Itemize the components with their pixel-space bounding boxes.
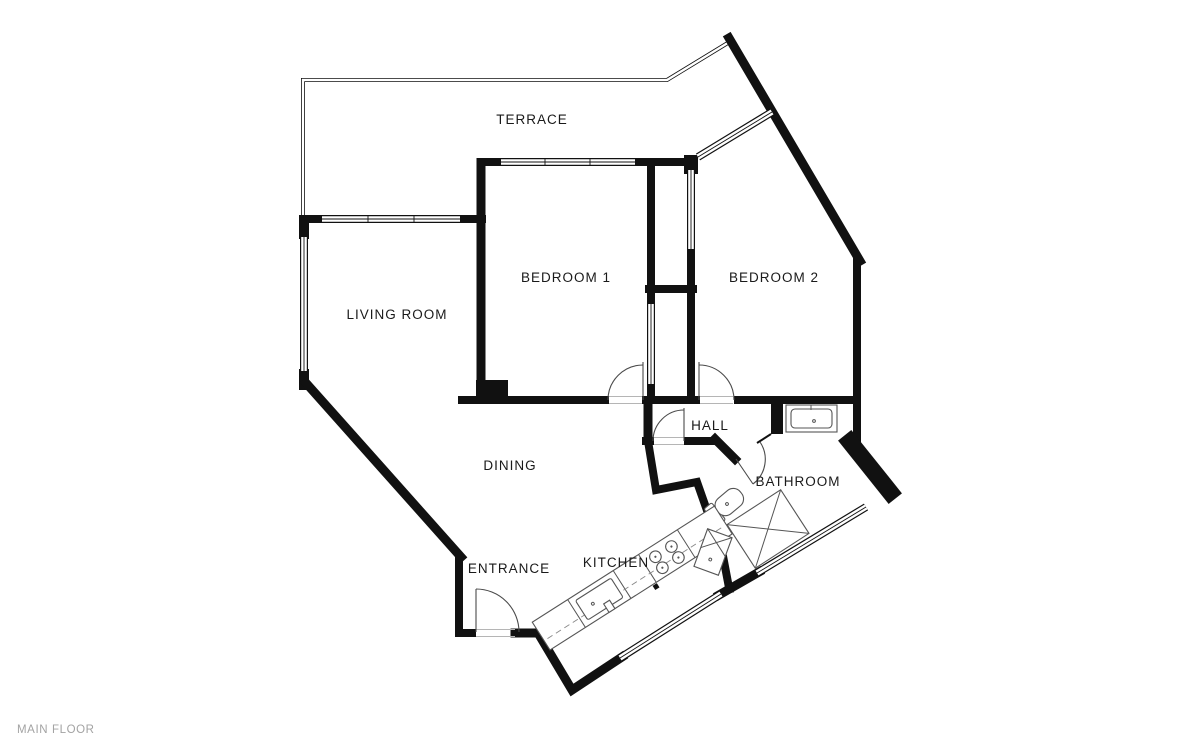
floor-plan-drawing: TERRACE BEDROOM 1 BEDROOM 2 LIVING ROOM … [0, 0, 1200, 750]
kitchen-fixtures [532, 506, 735, 655]
floor-plan-page: TERRACE BEDROOM 1 BEDROOM 2 LIVING ROOM … [0, 0, 1200, 750]
room-label-hall: HALL [691, 418, 729, 433]
window-bedroom2-terrace [698, 112, 772, 157]
floor-title: MAIN FLOOR [17, 724, 95, 736]
room-label-bathroom: BATHROOM [756, 474, 841, 489]
window-bedroom1-north [501, 159, 635, 166]
room-label-entrance: ENTRANCE [468, 561, 550, 576]
door-bedroom1 [608, 362, 643, 400]
bathroom-sink [786, 405, 837, 432]
room-label-livingroom: LIVING ROOM [346, 307, 447, 322]
room-label-dining: DINING [483, 458, 536, 473]
room-label-kitchen: KITCHEN [583, 555, 649, 570]
window-living-north [322, 216, 460, 223]
room-label-bedroom2: BEDROOM 2 [729, 270, 819, 285]
room-label-terrace: TERRACE [496, 112, 568, 127]
room-label-bedroom1: BEDROOM 1 [521, 270, 611, 285]
window-kitchen-southeast [620, 594, 721, 658]
kitchen-counter [532, 506, 732, 650]
windows [304, 112, 866, 658]
door-entrance [476, 589, 519, 632]
terrace-railing [303, 41, 731, 218]
door-hall [653, 408, 684, 441]
door-bedroom2 [699, 362, 734, 400]
